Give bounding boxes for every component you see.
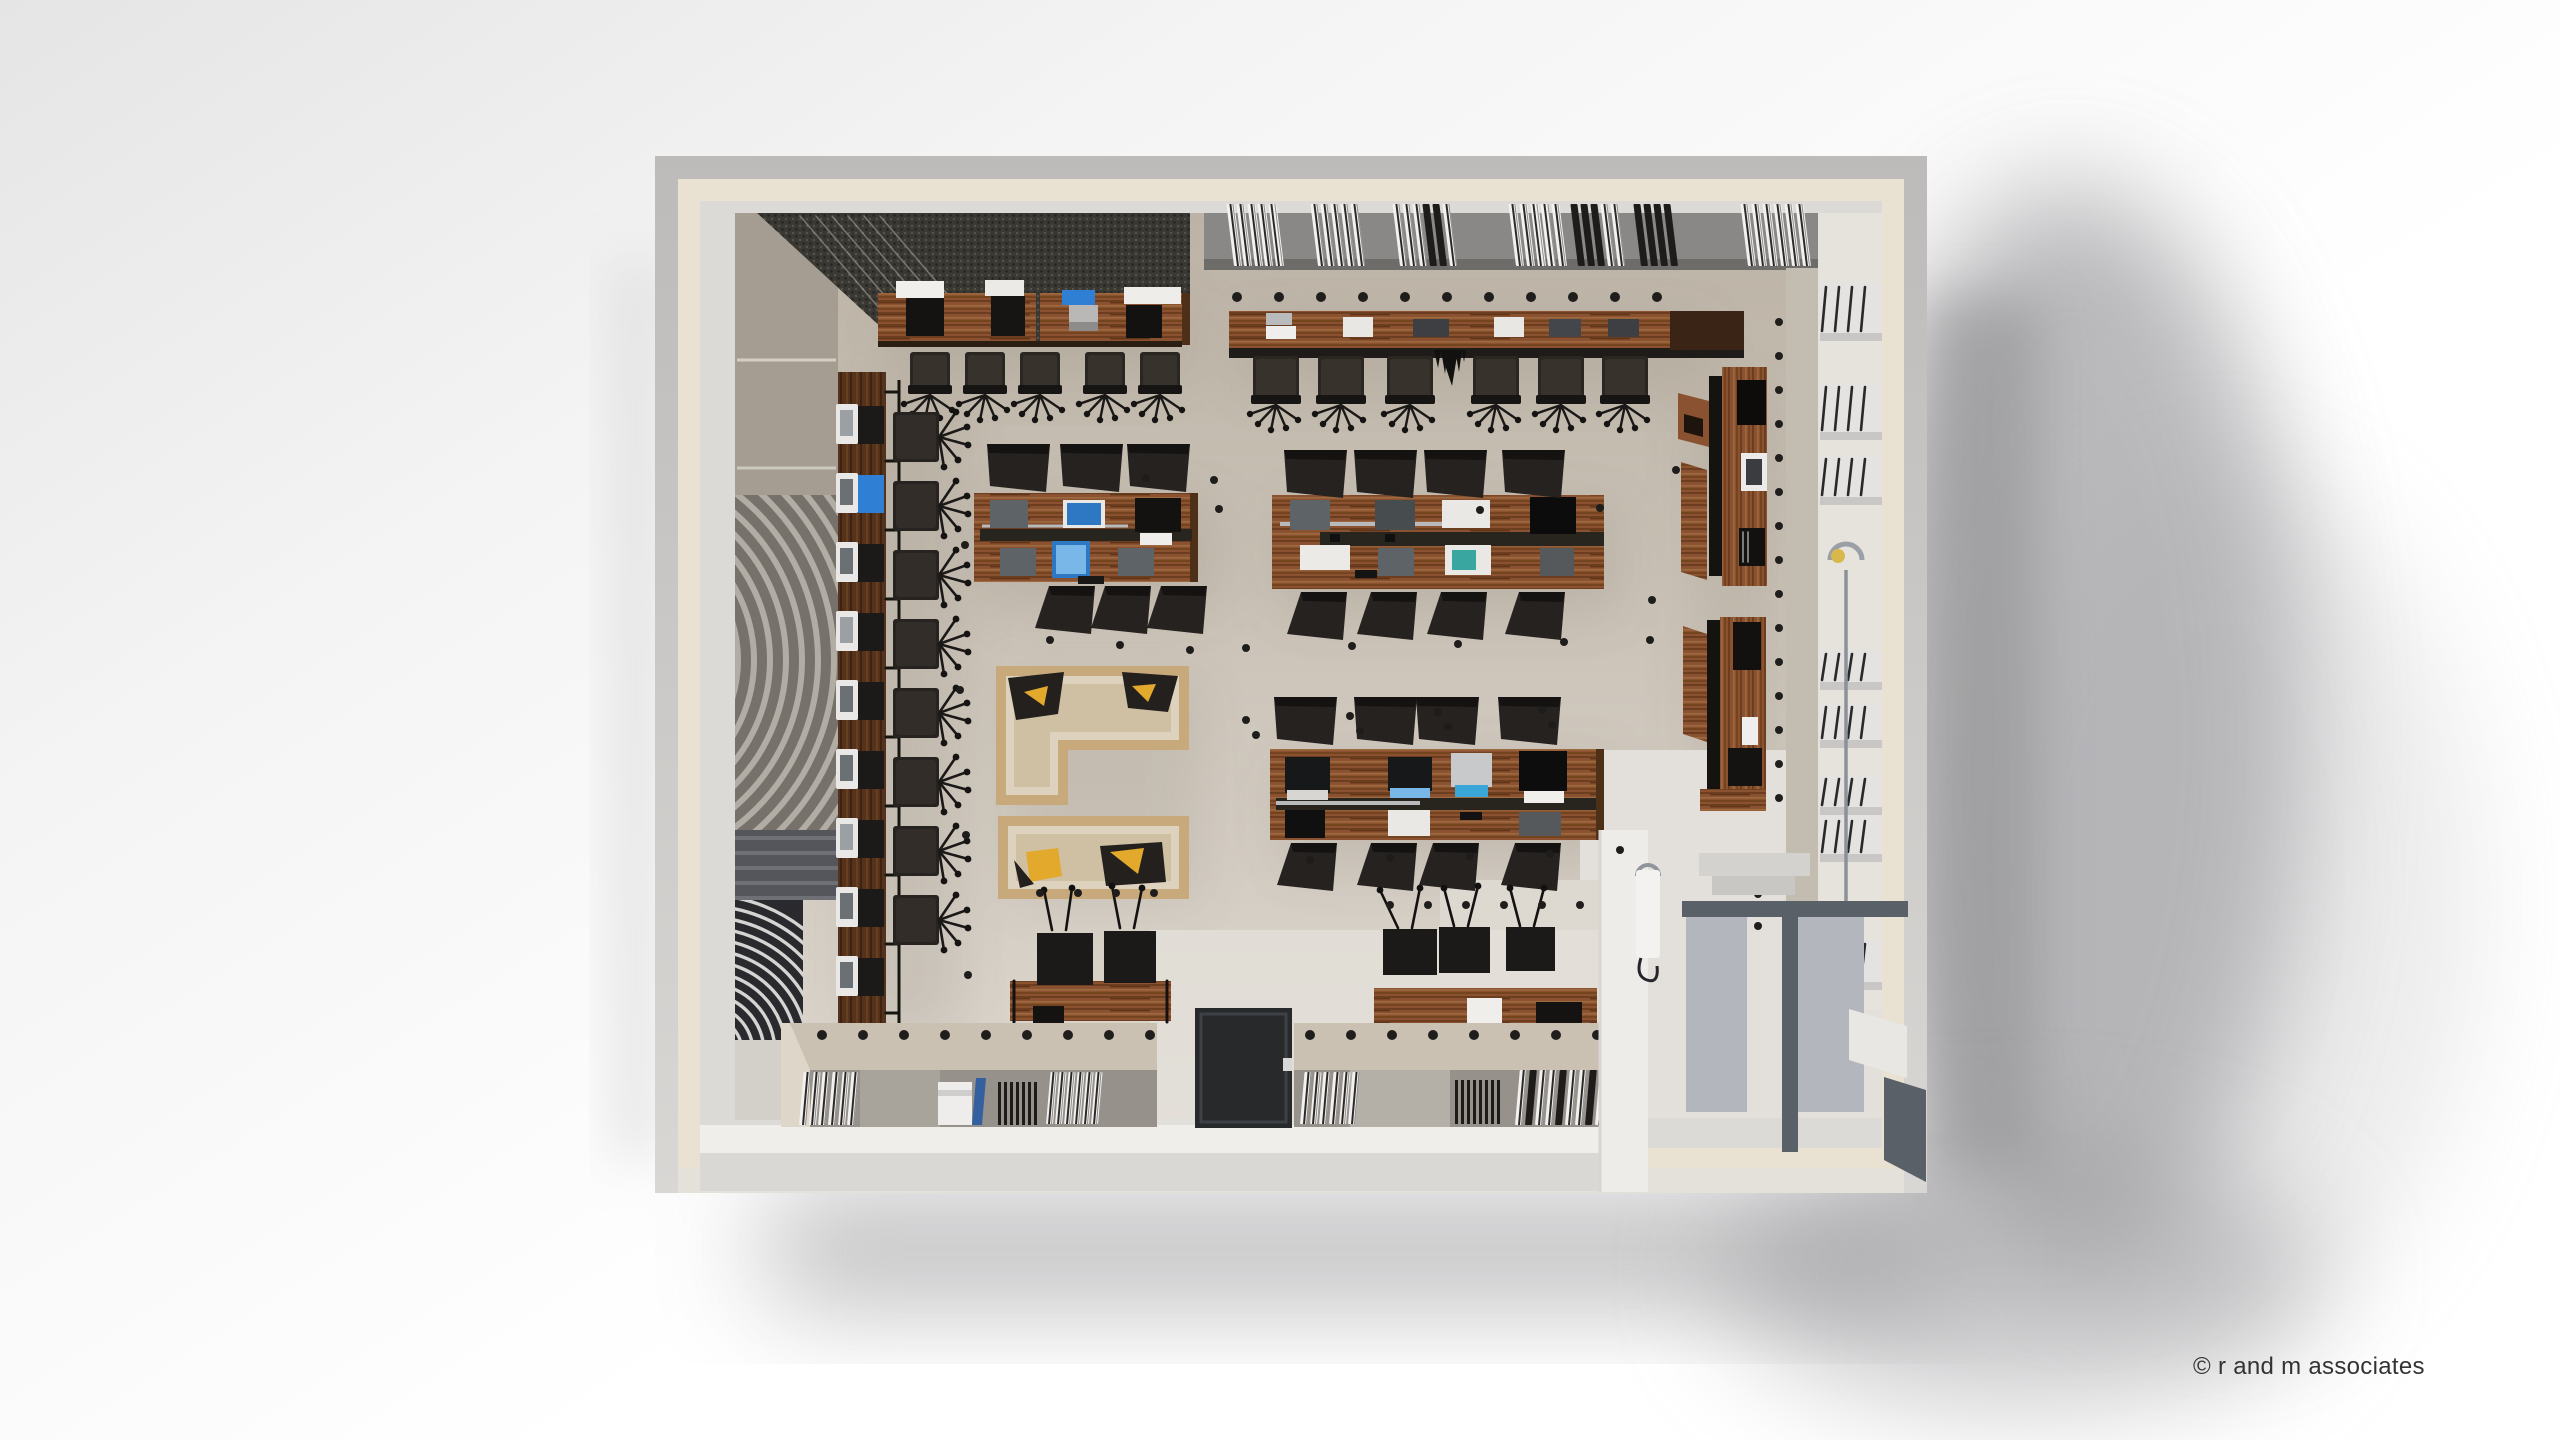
svg-text:© r and m associates: © r and m associates [2193,1353,2425,1380]
